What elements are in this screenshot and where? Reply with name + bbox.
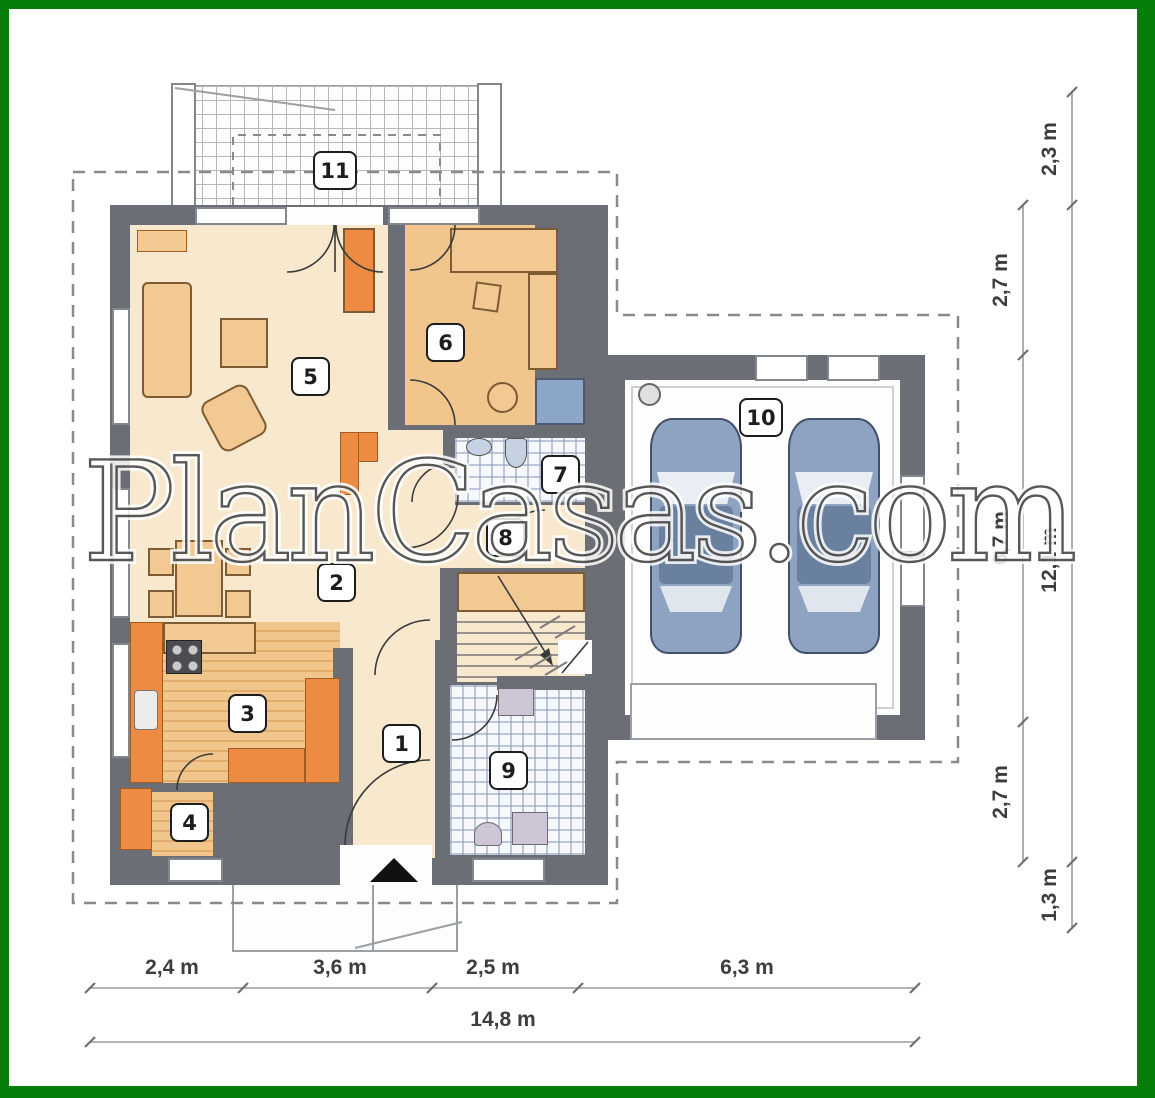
bath9-sink <box>474 822 502 846</box>
dim-right-inner-2: 6,7 m <box>989 483 1013 593</box>
dining-table <box>175 540 223 617</box>
room-label-3: 3 <box>228 694 267 733</box>
window-garage-top-1 <box>755 355 808 381</box>
garage-door <box>630 683 877 740</box>
window-garage-right-1 <box>900 475 925 553</box>
room-number: 11 <box>320 159 349 183</box>
window-left-dining <box>112 488 130 618</box>
window-top-living <box>195 207 287 225</box>
dim-bottom-4: 6,3 m <box>692 956 802 980</box>
window-bottom-pantry <box>168 858 223 882</box>
room-label-9: 9 <box>489 751 528 790</box>
room-label-8: 8 <box>486 518 525 557</box>
dim-bottom-total: 14,8 m <box>448 1008 558 1032</box>
room-label-7: 7 <box>541 455 580 494</box>
car-roof <box>797 506 871 584</box>
room-number: 6 <box>438 331 453 355</box>
kitchen-stove <box>166 640 202 674</box>
dining-chair-3 <box>225 548 251 576</box>
water-heater <box>512 812 548 845</box>
car-rear-window <box>798 586 870 612</box>
room-label-11: 11 <box>313 151 357 190</box>
wall-entry-bath9 <box>435 640 450 858</box>
dim-bottom-1: 2,4 m <box>117 956 227 980</box>
garage-side-door-opening <box>558 640 592 674</box>
room-label-1: 1 <box>382 724 421 763</box>
car-roof <box>659 506 733 584</box>
terrace-column-left <box>171 83 196 210</box>
dim-right-inner-1: 2,7 m <box>989 225 1013 335</box>
floor-plan-page: 1 2 3 4 5 6 7 8 9 10 11 2,4 m 3,6 m 2,5 … <box>0 0 1155 1098</box>
washing-machine <box>498 688 534 716</box>
car-right <box>788 418 880 654</box>
tall-cabinet <box>343 228 375 313</box>
room-number: 7 <box>553 463 568 487</box>
dim-bottom-3: 2,5 m <box>438 956 548 980</box>
pantry-cabinet <box>120 788 152 850</box>
garage-floor-drain <box>638 383 661 406</box>
shower-tray <box>535 378 585 425</box>
terrace-column-right <box>477 83 502 210</box>
room-label-2: 2 <box>317 563 356 602</box>
car-left <box>650 418 742 654</box>
room-label-6: 6 <box>426 323 465 362</box>
room-number: 9 <box>501 759 516 783</box>
stairs-landing <box>457 572 585 612</box>
room-number: 5 <box>303 365 318 389</box>
bath7-toilet <box>505 438 527 468</box>
kitchen-island <box>305 678 340 783</box>
coffee-table <box>220 318 268 368</box>
sofa <box>142 282 192 398</box>
dim-right-outer-1: 2,3 m <box>1038 94 1062 204</box>
car-windshield <box>795 472 873 504</box>
room-number: 4 <box>182 811 197 835</box>
dim-bottom-2: 3,6 m <box>285 956 395 980</box>
car-rear-window <box>660 586 732 612</box>
room-number: 10 <box>746 406 775 430</box>
window-left-kitchen <box>112 643 130 758</box>
tv-corner-unit-b <box>340 432 359 495</box>
room-label-10: 10 <box>739 398 783 437</box>
dining-chair-2 <box>148 590 174 618</box>
wall-corridor-bath7 <box>443 438 455 468</box>
wall-living-room6 <box>388 225 405 428</box>
kitchen-sink <box>134 690 158 730</box>
window-garage-top-2 <box>827 355 880 381</box>
window-bottom-bath9 <box>472 858 545 882</box>
desk-horizontal <box>450 228 558 273</box>
room-number: 8 <box>498 526 513 550</box>
sideboard <box>137 230 187 252</box>
window-left-living <box>112 308 130 425</box>
dim-right-outer-3: 1,3 m <box>1038 840 1062 950</box>
bath7-sink <box>466 438 492 456</box>
desk-chair <box>472 281 502 312</box>
room-number: 1 <box>394 732 409 756</box>
round-stool <box>487 382 518 413</box>
dining-chair-1 <box>148 548 174 576</box>
window-garage-right-2 <box>900 557 925 607</box>
kitchen-counter-bottom <box>228 748 305 783</box>
room-label-5: 5 <box>291 357 330 396</box>
dining-chair-4 <box>225 590 251 618</box>
room-number: 3 <box>240 702 255 726</box>
terrace-door-opening <box>287 207 383 225</box>
dim-right-outer-2: 12,1 m <box>1038 505 1062 615</box>
dim-right-inner-3: 2,7 m <box>989 737 1013 847</box>
room-number: 2 <box>329 571 344 595</box>
wall-room6-bath7 <box>443 425 585 438</box>
window-top-room6 <box>388 207 480 225</box>
room-label-4: 4 <box>170 803 209 842</box>
desk-vertical <box>528 273 558 370</box>
car-windshield <box>657 472 735 504</box>
